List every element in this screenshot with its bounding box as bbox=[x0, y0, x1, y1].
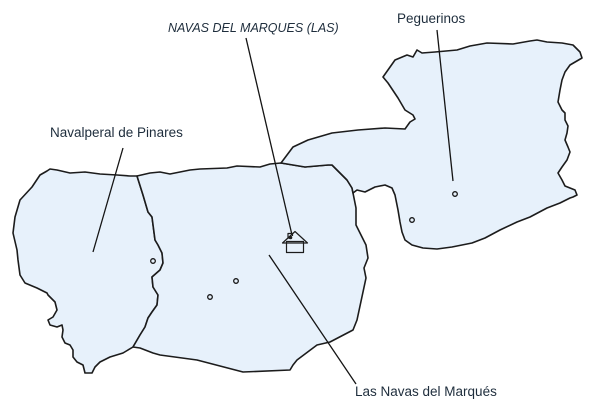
label-las-navas-del-marques: Las Navas del Marqués bbox=[355, 384, 497, 399]
region-las-navas-del-marques[interactable] bbox=[133, 163, 368, 372]
label-peguerinos: Peguerinos bbox=[397, 11, 466, 26]
town-dot-peguerinos-1 bbox=[453, 192, 458, 197]
town-dot-peguerinos-2 bbox=[410, 218, 415, 223]
label-navas-del-marques-title: NAVAS DEL MARQUES (LAS) bbox=[168, 21, 339, 35]
map-canvas: NAVAS DEL MARQUES (LAS) Peguerinos Naval… bbox=[0, 0, 600, 413]
municipality-map: NAVAS DEL MARQUES (LAS) Peguerinos Naval… bbox=[0, 0, 600, 413]
label-navalperal-de-pinares: Navalperal de Pinares bbox=[50, 125, 183, 140]
town-dot-las-navas-2 bbox=[208, 295, 213, 300]
town-dot-las-navas-1 bbox=[234, 279, 239, 284]
town-dot-navalperal bbox=[151, 259, 156, 264]
